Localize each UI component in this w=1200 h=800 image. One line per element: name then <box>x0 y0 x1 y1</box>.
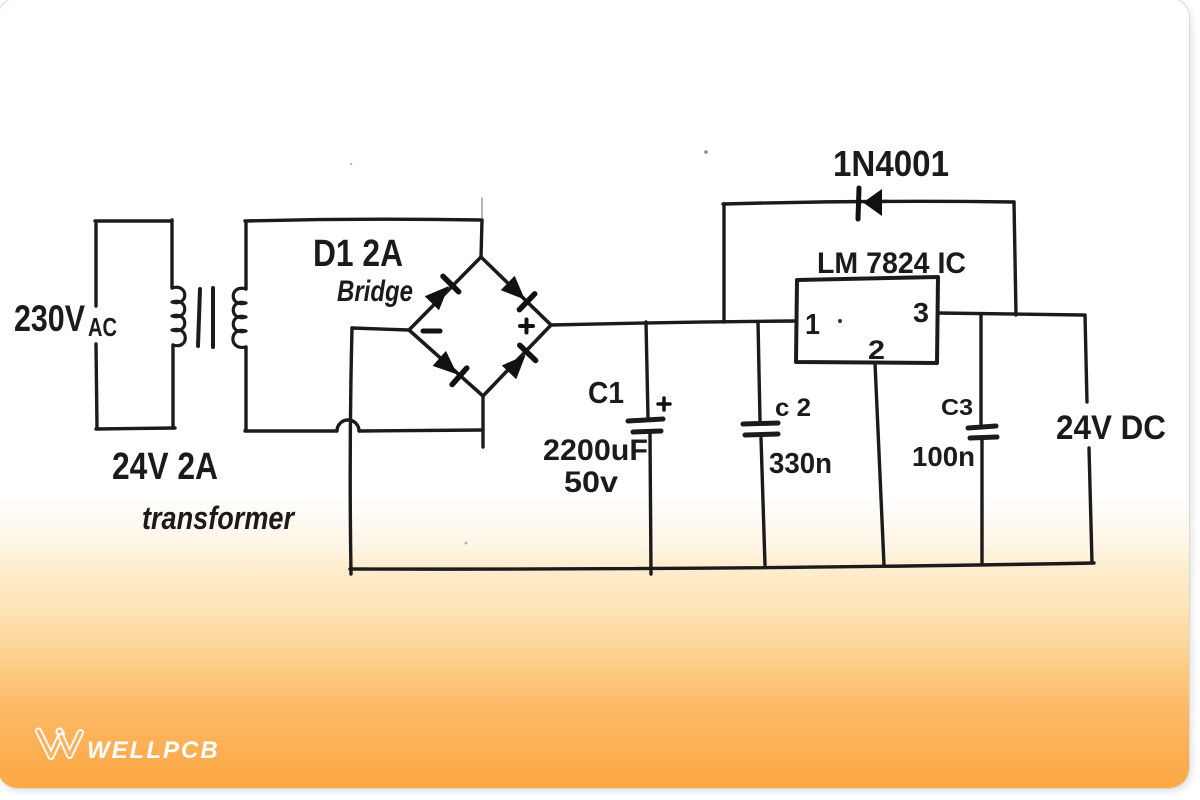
svg-text:2: 2 <box>868 335 885 365</box>
svg-text:2200uF: 2200uF <box>543 434 648 467</box>
svg-text:transformer: transformer <box>142 500 295 536</box>
svg-text:1: 1 <box>805 309 820 341</box>
svg-text:1N4001: 1N4001 <box>833 143 949 184</box>
svg-text:230V: 230V <box>14 298 85 339</box>
svg-text:Bridge: Bridge <box>337 275 413 308</box>
svg-text:c 2: c 2 <box>775 394 811 422</box>
svg-text:100n: 100n <box>912 441 975 472</box>
svg-text:24V 2A: 24V 2A <box>112 446 218 488</box>
svg-text:50v: 50v <box>564 466 618 499</box>
svg-text:LM 7824 IC: LM 7824 IC <box>817 247 966 280</box>
svg-text:24V DC: 24V DC <box>1056 409 1166 447</box>
svg-text:3: 3 <box>913 297 929 328</box>
svg-text:D1 2A: D1 2A <box>313 233 403 275</box>
svg-text:WELLPCB: WELLPCB <box>87 737 220 764</box>
svg-text:330n: 330n <box>769 448 832 480</box>
svg-text:C3: C3 <box>941 394 973 420</box>
svg-text:AC: AC <box>88 312 117 342</box>
svg-text:C1: C1 <box>588 375 624 410</box>
